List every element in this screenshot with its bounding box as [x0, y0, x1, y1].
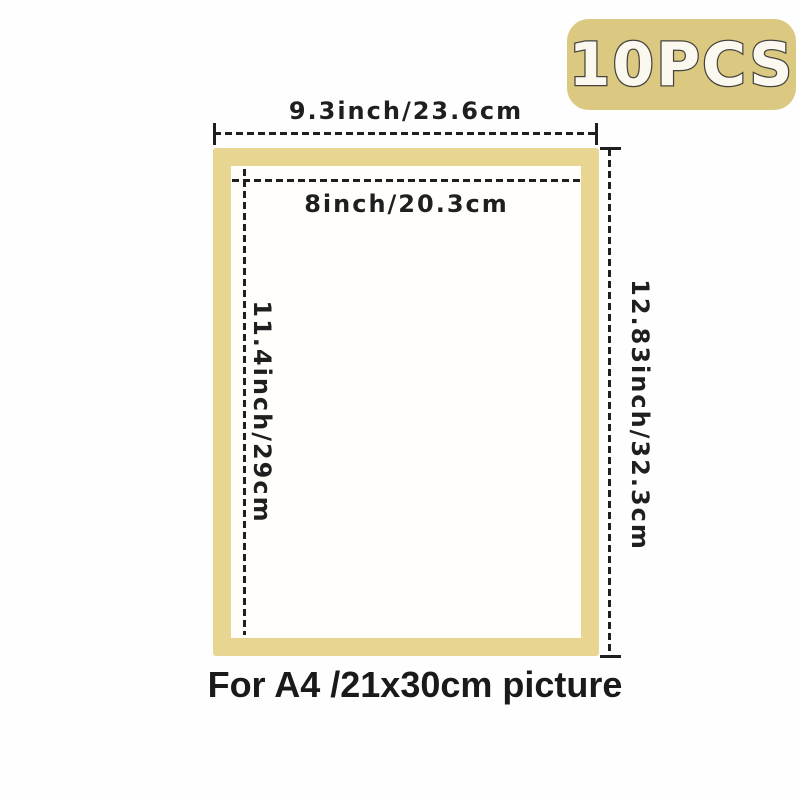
outer-height-tick-bottom [600, 655, 621, 658]
caption: For A4 /21x30cm picture [115, 664, 715, 706]
outer-width-label: 9.3inch/23.6cm [213, 97, 599, 125]
outer-width-tick-right [595, 123, 598, 145]
inner-width-label: 8inch/20.3cm [232, 190, 581, 218]
inner-width-dashed-line [232, 179, 581, 182]
outer-height-dimension-line [608, 149, 611, 657]
outer-height-tick-top [600, 147, 621, 150]
outer-width-tick-left [213, 123, 216, 145]
quantity-badge-label: 10PCS [569, 35, 795, 95]
quantity-badge: 10PCS [567, 19, 796, 110]
product-dimension-diagram: 10PCS 9.3inch/23.6cm 8inch/20.3cm 11.4in… [0, 0, 800, 800]
outer-width-dimension-line [214, 132, 598, 135]
inner-height-dashed-line [243, 169, 246, 635]
inner-height-label: 11.4inch/29cm [248, 300, 276, 523]
outer-height-label: 12.83inch/32.3cm [626, 279, 654, 551]
